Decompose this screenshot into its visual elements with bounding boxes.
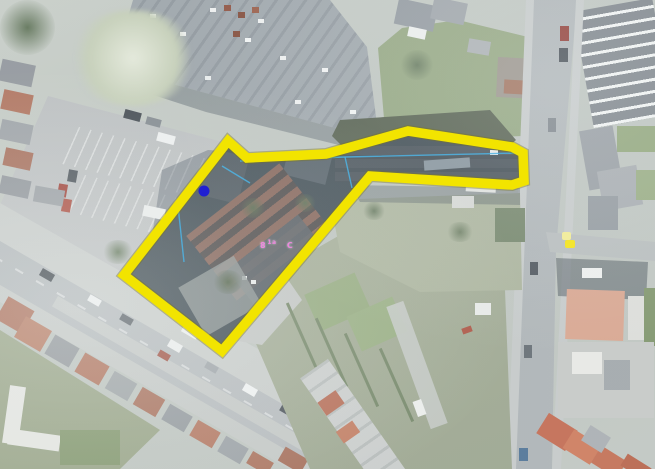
haze-overlay [0, 0, 655, 469]
aerial-map-canvas[interactable]: 8 1a C [0, 0, 655, 469]
parcel-label: 1a [267, 240, 276, 246]
parcel-label: 8 [260, 242, 266, 250]
parcel-label: C [287, 242, 293, 250]
poi-marker[interactable] [199, 186, 210, 197]
